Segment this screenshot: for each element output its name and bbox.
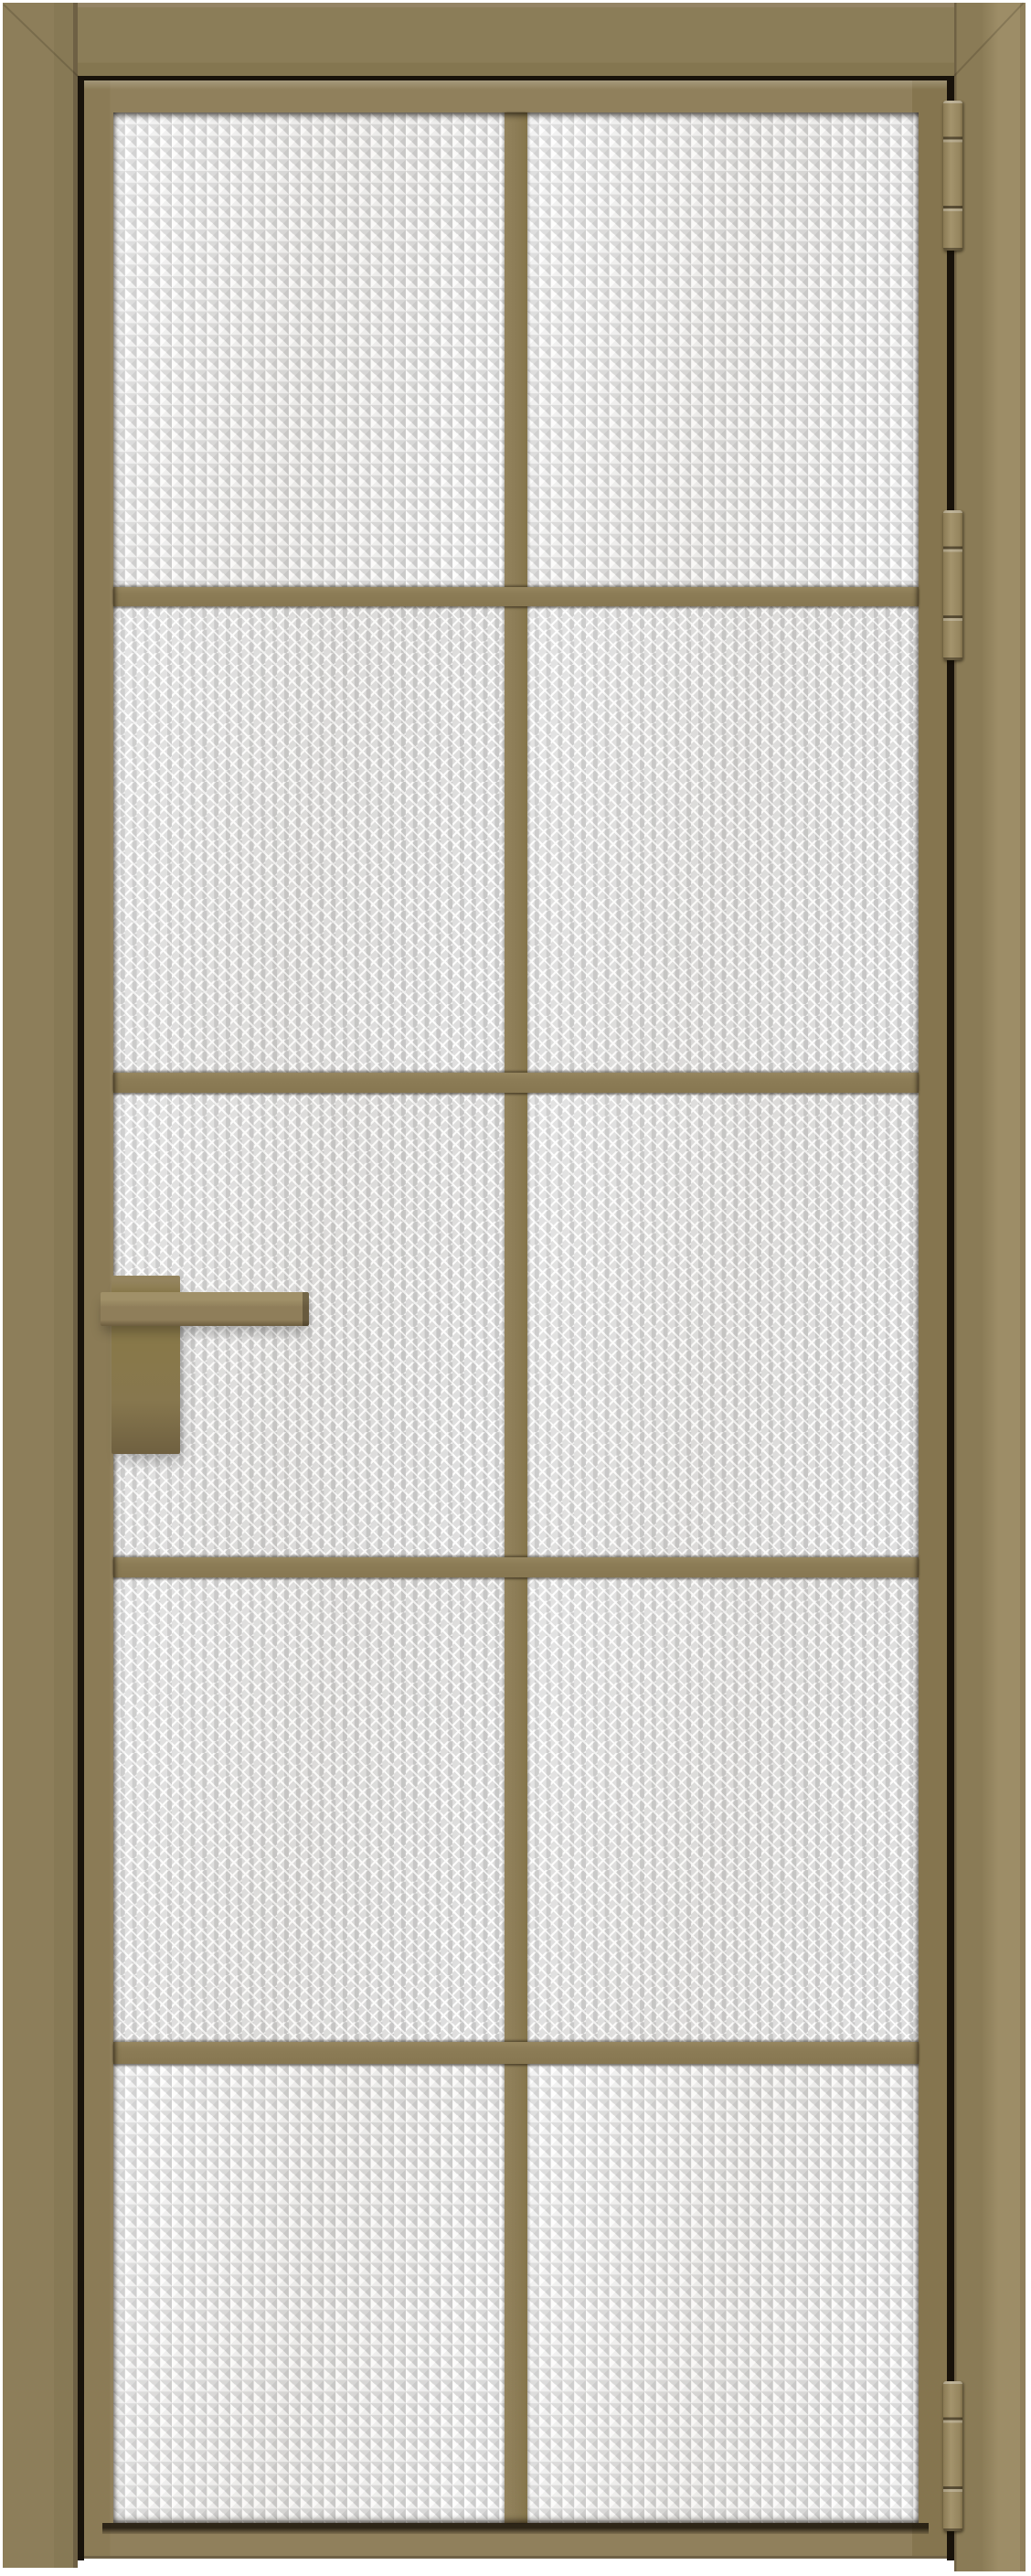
muntin-horizontal-2 <box>113 1073 919 1093</box>
glass-pane-row4-col1 <box>113 1577 505 2042</box>
door-frame-right-jamb <box>954 3 1026 2571</box>
hinge-middle <box>943 510 962 660</box>
glass-pane-row3-col2 <box>527 1093 919 1557</box>
muntin-horizontal-1 <box>113 587 919 606</box>
handle-lever <box>101 1292 309 1326</box>
glass-pane-row1-col1 <box>113 112 505 587</box>
glass-pane-row4-col2 <box>527 1577 919 2042</box>
hinge-top <box>943 101 962 251</box>
gap-shadow-right <box>947 76 954 2560</box>
door-frame-left-jamb <box>3 3 78 2568</box>
door-render <box>0 0 1031 2576</box>
glass-pane-row2-col2 <box>527 606 919 1073</box>
glass-pane-row5-col1 <box>113 2064 505 2523</box>
glass-pane-row2-col1 <box>113 606 505 1073</box>
glass-pane-row5-col2 <box>527 2064 919 2523</box>
muntin-horizontal-4 <box>113 2042 919 2064</box>
muntin-vertical <box>505 112 527 2523</box>
glass-pane-row1-col2 <box>527 112 919 587</box>
door-frame-top <box>3 3 1026 76</box>
glazing-bottom-shadow <box>102 2523 929 2534</box>
muntin-horizontal-3 <box>113 1557 919 1577</box>
hinge-bottom <box>943 2381 962 2531</box>
gap-shadow-left <box>78 76 84 2560</box>
